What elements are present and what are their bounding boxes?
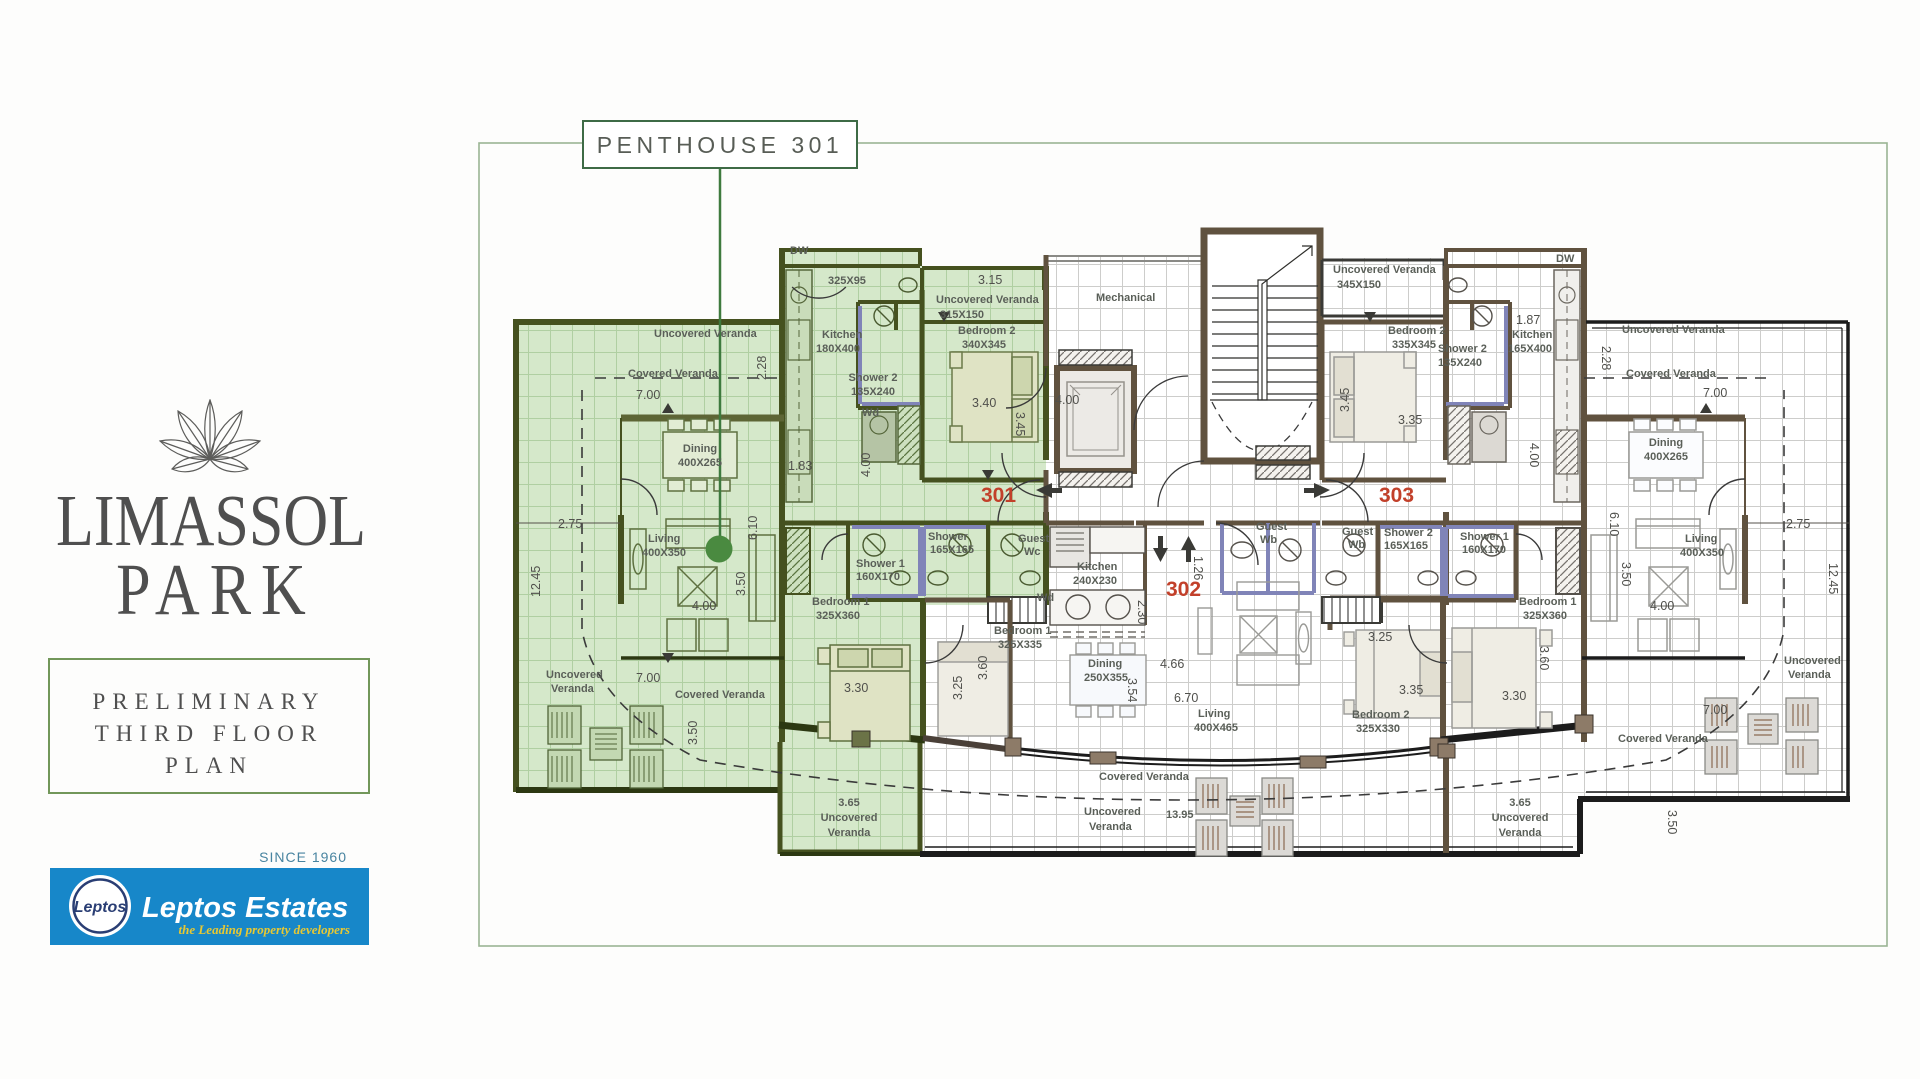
svg-text:335X345: 335X345 [1392,339,1436,351]
svg-text:Wd: Wd [862,407,879,419]
svg-text:4.00: 4.00 [1527,443,1541,467]
svg-text:3.65: 3.65 [838,797,859,809]
svg-text:3.30: 3.30 [1502,689,1526,703]
svg-text:13.95: 13.95 [1166,809,1194,821]
svg-text:3.54: 3.54 [1125,678,1139,702]
svg-text:Shower 2: Shower 2 [849,372,898,384]
svg-text:Bedroom 1: Bedroom 1 [994,625,1051,637]
svg-text:Uncovered: Uncovered [1084,806,1141,818]
svg-text:Mechanical: Mechanical [1096,292,1155,304]
svg-text:315X150: 315X150 [940,309,984,321]
svg-text:250X355: 250X355 [1084,672,1128,684]
svg-text:Veranda: Veranda [551,683,595,695]
svg-text:6.10: 6.10 [746,516,760,540]
svg-text:2.28: 2.28 [755,356,769,380]
svg-text:3.60: 3.60 [1537,646,1551,670]
svg-text:Living: Living [1685,533,1717,545]
svg-text:Covered Veranda: Covered Veranda [1618,733,1709,745]
svg-text:7.00: 7.00 [636,671,660,685]
svg-text:1.87: 1.87 [1516,313,1540,327]
svg-text:240X230: 240X230 [1073,575,1117,587]
svg-text:Uncovered: Uncovered [1492,812,1549,824]
svg-text:Living: Living [1198,708,1230,720]
svg-text:Uncovered: Uncovered [1784,655,1841,667]
svg-text:301: 301 [981,484,1016,507]
svg-text:400X265: 400X265 [678,457,722,469]
svg-text:3.35: 3.35 [1398,413,1422,427]
svg-text:Wb: Wb [1348,539,1365,551]
svg-text:Kitchen: Kitchen [1077,561,1118,573]
svg-text:4.00: 4.00 [692,599,716,613]
svg-text:4.00: 4.00 [859,453,873,477]
svg-text:Wb: Wb [1260,534,1277,546]
svg-text:Uncovered Veranda: Uncovered Veranda [1333,264,1437,276]
svg-text:Kitchen: Kitchen [822,329,863,341]
svg-text:345X150: 345X150 [1337,279,1381,291]
svg-text:3.25: 3.25 [951,676,965,700]
svg-text:340X345: 340X345 [962,339,1006,351]
svg-text:3.50: 3.50 [734,572,748,596]
svg-text:Dining: Dining [1649,437,1683,449]
svg-text:Bedroom 1: Bedroom 1 [1519,596,1576,608]
svg-text:2.75: 2.75 [1786,517,1810,531]
svg-text:2.75: 2.75 [558,517,582,531]
svg-text:Kitchen: Kitchen [1512,329,1553,341]
svg-text:12.45: 12.45 [529,566,543,597]
svg-text:Veranda: Veranda [1499,827,1543,839]
svg-text:PENTHOUSE 301: PENTHOUSE 301 [597,132,843,158]
svg-text:Bedroom 2: Bedroom 2 [1388,325,1445,337]
svg-text:7.00: 7.00 [636,388,660,402]
svg-text:325X360: 325X360 [1523,610,1567,622]
svg-text:3.60: 3.60 [976,656,990,680]
svg-text:7.00: 7.00 [1703,386,1727,400]
svg-text:Covered Veranda: Covered Veranda [1626,368,1717,380]
svg-text:7.00: 7.00 [1703,703,1727,717]
svg-text:302: 302 [1166,578,1201,601]
svg-text:Covered Veranda: Covered Veranda [628,368,719,380]
svg-text:2.30: 2.30 [1135,600,1149,624]
svg-text:Veranda: Veranda [828,827,872,839]
svg-text:3.45: 3.45 [1013,412,1027,436]
svg-text:Guest: Guest [1256,521,1288,533]
svg-text:400X350: 400X350 [642,547,686,559]
svg-text:303: 303 [1379,484,1414,507]
svg-text:Covered Veranda: Covered Veranda [675,689,766,701]
svg-text:3.40: 3.40 [972,396,996,410]
svg-text:Bedroom 2: Bedroom 2 [1352,709,1409,721]
svg-text:Guest: Guest [1342,526,1374,538]
svg-text:160X170: 160X170 [1462,544,1506,556]
svg-text:400X350: 400X350 [1680,547,1724,559]
svg-text:1.83: 1.83 [788,459,812,473]
svg-text:Shower 2: Shower 2 [1384,527,1433,539]
svg-text:325X335: 325X335 [998,639,1042,651]
svg-text:Veranda: Veranda [1089,821,1133,833]
svg-text:400X465: 400X465 [1194,722,1238,734]
svg-text:Uncovered Veranda: Uncovered Veranda [936,294,1040,306]
svg-text:3.25: 3.25 [1368,630,1392,644]
svg-text:3.50: 3.50 [1619,562,1633,586]
svg-text:165X165: 165X165 [1384,540,1428,552]
svg-text:Guest: Guest [1018,533,1050,545]
svg-text:3.65: 3.65 [1509,797,1530,809]
svg-text:Shower 1: Shower 1 [856,558,905,570]
svg-text:325X95: 325X95 [828,275,866,287]
svg-text:Bedroom 1: Bedroom 1 [812,596,869,608]
svg-text:3.50: 3.50 [1665,810,1679,834]
svg-text:4.00: 4.00 [1650,599,1674,613]
svg-text:135X240: 135X240 [851,386,895,398]
svg-text:Dining: Dining [1088,658,1122,670]
svg-text:400X265: 400X265 [1644,451,1688,463]
svg-text:3.35: 3.35 [1399,683,1423,697]
svg-text:DW: DW [790,245,809,257]
svg-text:Dining: Dining [683,443,717,455]
svg-text:Wc: Wc [1024,546,1041,558]
svg-text:3.45: 3.45 [1338,388,1352,412]
svg-text:Shower 1: Shower 1 [1460,531,1509,543]
svg-text:4.66: 4.66 [1160,657,1184,671]
svg-text:Veranda: Veranda [1788,669,1832,681]
svg-text:135X240: 135X240 [1438,357,1482,369]
svg-text:160X170: 160X170 [856,571,900,583]
svg-text:12.45: 12.45 [1826,563,1840,594]
svg-text:Wd: Wd [1037,592,1054,604]
svg-text:165X400: 165X400 [1508,343,1552,355]
svg-text:Uncovered Veranda: Uncovered Veranda [1622,324,1726,336]
svg-text:325X330: 325X330 [1356,723,1400,735]
svg-text:Shower 2: Shower 2 [1438,343,1487,355]
svg-text:6.70: 6.70 [1174,691,1198,705]
svg-text:165X165: 165X165 [930,544,974,556]
svg-text:Living: Living [648,533,680,545]
svg-text:180X400: 180X400 [816,343,860,355]
svg-text:3.15: 3.15 [978,273,1002,287]
svg-text:1.26: 1.26 [1191,556,1205,580]
svg-text:DW: DW [1556,253,1575,265]
svg-text:Uncovered: Uncovered [546,669,603,681]
svg-text:6.10: 6.10 [1607,512,1621,536]
svg-text:3.50: 3.50 [686,721,700,745]
svg-text:Covered Veranda: Covered Veranda [1099,771,1190,783]
svg-text:325X360: 325X360 [816,610,860,622]
svg-text:3.30: 3.30 [844,681,868,695]
svg-text:2.28: 2.28 [1599,346,1613,370]
svg-text:4.00: 4.00 [1055,393,1079,407]
svg-text:Bedroom 2: Bedroom 2 [958,325,1015,337]
svg-text:Uncovered: Uncovered [821,812,878,824]
svg-text:Uncovered Veranda: Uncovered Veranda [654,328,758,340]
svg-text:Shower: Shower [928,531,968,543]
